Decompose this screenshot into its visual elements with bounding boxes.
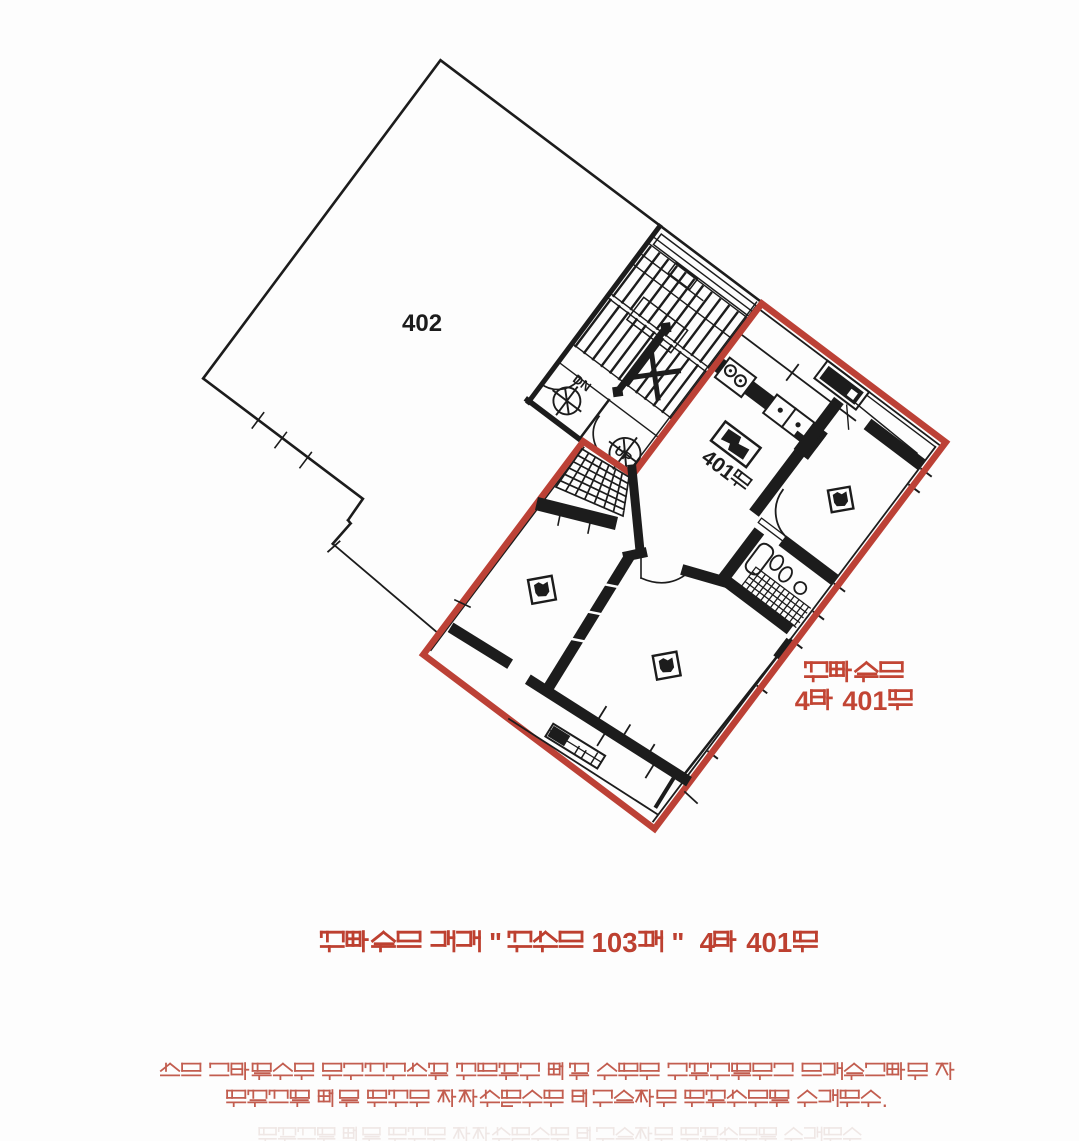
svg-text:103: 103 <box>584 927 638 958</box>
svg-text:" 4: " 4 <box>664 927 716 958</box>
svg-text:.: . <box>882 1086 888 1112</box>
svg-text:402: 402 <box>402 310 442 337</box>
svg-text:": " <box>481 927 509 958</box>
svg-text:401: 401 <box>835 686 888 716</box>
svg-text:4: 4 <box>795 686 810 716</box>
svg-text:401: 401 <box>739 927 793 958</box>
